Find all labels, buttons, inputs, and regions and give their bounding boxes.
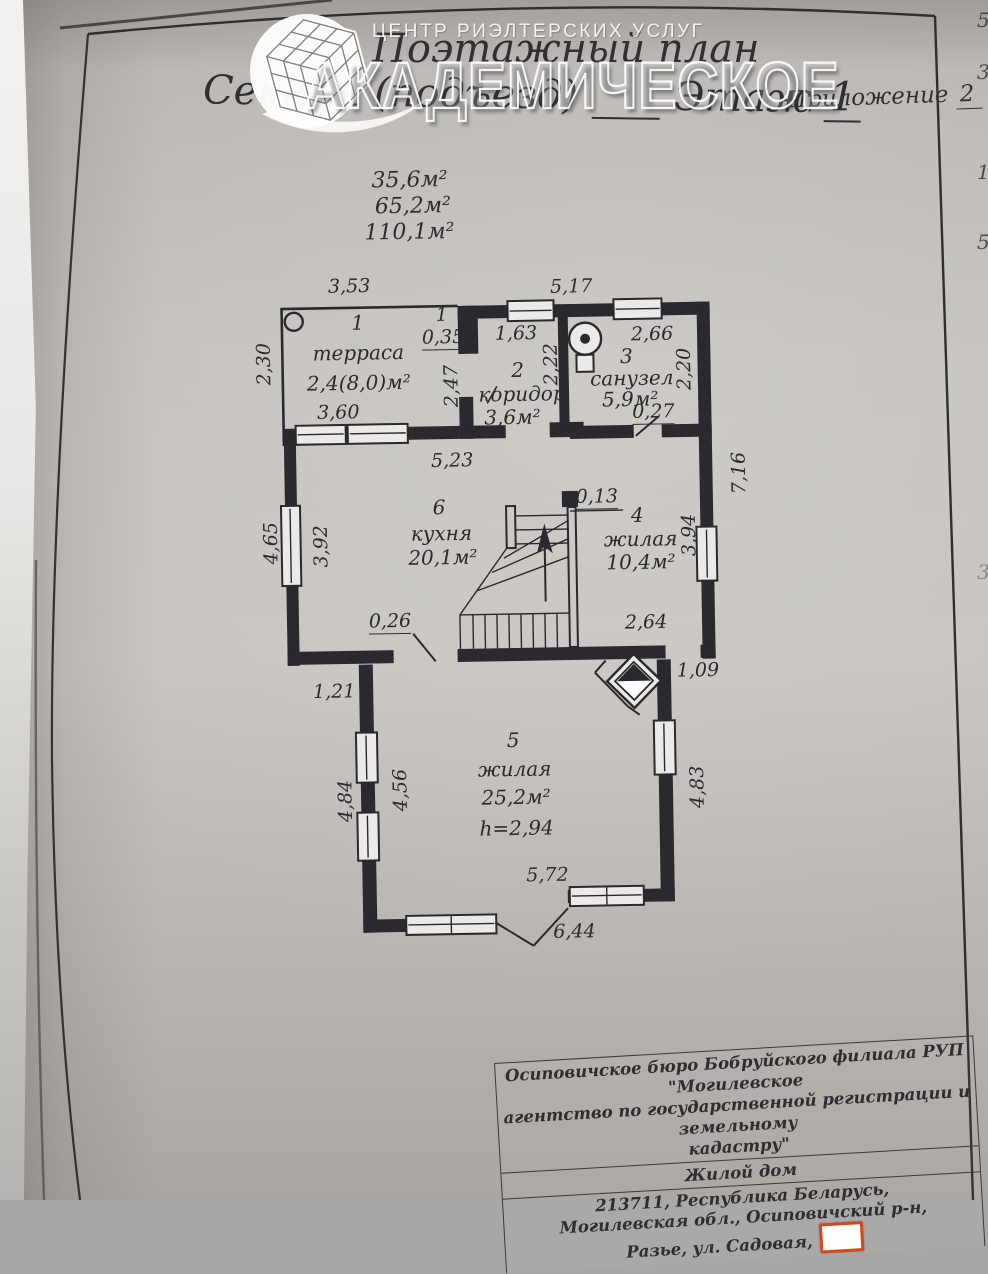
redaction-box: [819, 1221, 865, 1253]
room5-number: 5: [507, 730, 520, 750]
room2-area: 3,6м²: [484, 407, 541, 428]
room3-number: 3: [620, 346, 633, 366]
room4-number: 4: [631, 505, 644, 525]
room3-name: санузел: [590, 367, 674, 388]
room5-ceiling-height: h=2,94: [479, 817, 554, 838]
room4-area: 10,4м²: [606, 551, 675, 572]
annex-value: 2: [955, 81, 983, 110]
adjacent-page-glyph: 3: [977, 560, 988, 584]
dim-room4-depth: 3,94: [680, 514, 700, 557]
object-type: Жилой дом: [684, 1160, 798, 1185]
room2-name: коридор: [478, 383, 566, 405]
room4-name: жилая: [604, 528, 678, 549]
dim-stair-wall: 0,13: [576, 487, 619, 510]
summary-area-1: 35,6м²: [335, 167, 453, 195]
summary-area-3: 110,1м²: [336, 219, 454, 247]
adjacent-page-glyph: 5: [977, 230, 988, 254]
dim-kitchen-depth: 3,92: [312, 525, 332, 568]
address-line-3: Разье, ул. Садовая,: [626, 1232, 813, 1262]
dim-bath-depth: 2,20: [675, 348, 695, 391]
room2-number: 2: [511, 360, 524, 380]
scanned-floor-plan-photo: { "watermark": { "service_line": "ЦЕНТР …: [0, 0, 988, 1200]
dim-corridor-depth: 2,22: [542, 343, 562, 386]
adjacent-page-glyph: 5: [977, 8, 988, 32]
dim-room5-right: 4,83: [688, 766, 708, 809]
summary-area-2: 65,2м²: [336, 193, 454, 221]
dim-room5-left-in: 4,56: [391, 769, 411, 812]
dim-kitchen-width: 5,23: [431, 451, 474, 471]
room6-area: 20,1м²: [408, 547, 477, 568]
dim-kitchen-left-out: 4,65: [262, 522, 282, 565]
room1-name: терраса: [312, 342, 404, 364]
dim-step-left: 1,21: [313, 682, 356, 702]
room6-name: кухня: [411, 523, 473, 544]
room6-number: 6: [432, 497, 445, 517]
dim-terrace-top: 3,53: [328, 277, 371, 297]
dim-terrace-bottom: 3,60: [317, 403, 360, 423]
room5-name: жилая: [478, 758, 552, 779]
room5-area: 25,2м²: [481, 786, 550, 807]
dim-bay-total: 6,44: [553, 922, 596, 942]
adjacent-page-glyph: 1: [977, 160, 988, 184]
pier-mark: 1: [435, 306, 447, 325]
dim-bath-width: 2,66: [631, 325, 674, 345]
dim-pier-width: 0,35: [422, 328, 465, 351]
room1-area: 2,4(8,0)м²: [307, 372, 411, 394]
dim-room5-bottom: 5,72: [526, 866, 569, 886]
dim-kitchen-door: 0,26: [369, 612, 412, 635]
room1-number: 1: [351, 313, 364, 333]
dim-terrace-right: 2,47: [442, 365, 462, 408]
dim-room4-width: 2,64: [625, 613, 668, 633]
summary-areas: 35,6м² 65,2м² 110,1м²: [335, 167, 454, 247]
dim-terrace-left: 2,30: [255, 343, 275, 386]
dim-step-right: 1,09: [677, 661, 720, 681]
dim-main-top: 5,17: [550, 277, 593, 297]
watermark-brand: АКАДЕМИЧЕСКОЕ: [304, 48, 840, 124]
dim-corridor-width: 1,63: [495, 324, 538, 344]
floor-plan: 3,53 2,30 1 терраса 2,4(8,0)м² 3,60 1 0,…: [239, 265, 791, 974]
watermark-service-line: ЦЕНТР РИЭЛТЕРСКИХ УСЛУГ: [372, 21, 704, 43]
footer-table: Осиповичское бюро Бобруйского филиала РУ…: [494, 1035, 985, 1273]
dim-room5-left-out: 4,84: [336, 780, 356, 823]
dim-right-side-total: 7,16: [730, 452, 750, 495]
dim-bath-door: 0,27: [632, 402, 675, 425]
